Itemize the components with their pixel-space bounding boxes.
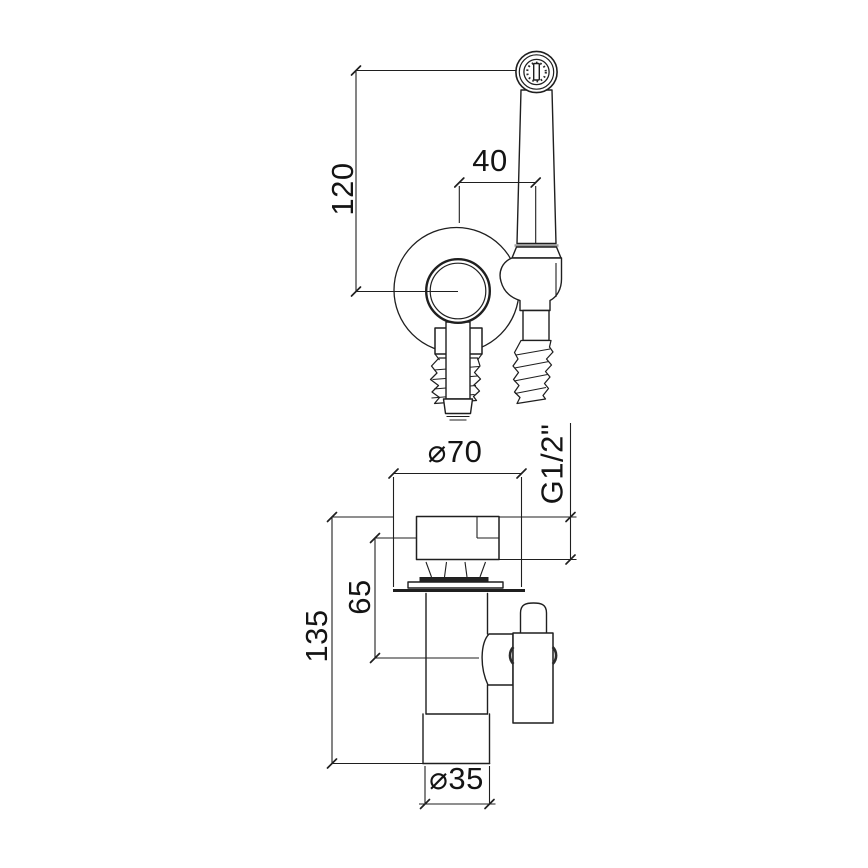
dim-70-label: ⌀70 xyxy=(428,434,483,469)
holder-block xyxy=(513,633,553,723)
holder-mount xyxy=(482,634,513,685)
pipe-body xyxy=(423,594,490,764)
dim-120: 120 xyxy=(325,66,517,296)
dim-thread: G1/2" xyxy=(499,423,577,564)
handle-flare xyxy=(512,247,561,258)
outlet-tip xyxy=(444,399,473,414)
holder-side xyxy=(482,603,556,723)
base-plate xyxy=(408,582,503,588)
outlet-tube xyxy=(446,322,470,399)
dim-120-label: 120 xyxy=(325,162,360,215)
valve-outlet xyxy=(431,322,483,420)
front-view: 120 40 xyxy=(325,51,562,420)
dim-35: ⌀35 xyxy=(419,761,496,808)
dim-70: ⌀70 xyxy=(389,434,526,587)
dim-135: 135 xyxy=(299,513,424,769)
spray-handle xyxy=(512,90,561,258)
dim-65-label: 65 xyxy=(342,579,377,614)
nozzle-slot xyxy=(534,64,540,81)
dim-40-label: 40 xyxy=(472,143,507,178)
spray-head xyxy=(516,51,557,92)
side-view: ⌀70 G1/2" xyxy=(299,423,577,809)
mounting-flange xyxy=(393,562,525,591)
dim-thread-label: G1/2" xyxy=(534,424,569,505)
spray-hose xyxy=(513,311,553,404)
dim-135-label: 135 xyxy=(299,609,334,662)
holder-dome xyxy=(521,603,547,633)
spray-holder xyxy=(500,258,561,311)
valve-body-side xyxy=(417,517,500,560)
drawing-canvas: 120 40 ⌀70 G1/2" xyxy=(0,0,868,868)
dim-35-label: ⌀35 xyxy=(429,761,484,796)
technical-drawing: 120 40 ⌀70 G1/2" xyxy=(0,0,868,868)
